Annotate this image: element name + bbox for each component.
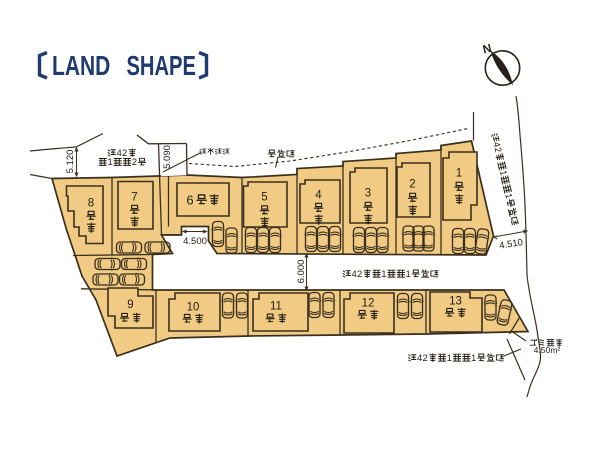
svg-text:4.50m²: 4.50m² bbox=[534, 345, 561, 355]
svg-text:10: 10 bbox=[187, 302, 200, 314]
svg-text:11: 11 bbox=[270, 301, 282, 313]
svg-text:1: 1 bbox=[471, 353, 476, 364]
svg-text:2: 2 bbox=[132, 157, 137, 168]
svg-text:12: 12 bbox=[362, 298, 375, 310]
svg-text:SHAPE: SHAPE bbox=[127, 51, 196, 82]
svg-text:5.120: 5.120 bbox=[65, 150, 76, 174]
svg-text:1: 1 bbox=[456, 168, 462, 180]
svg-text:5.090: 5.090 bbox=[162, 145, 173, 169]
svg-text:4: 4 bbox=[315, 190, 322, 202]
svg-text:1: 1 bbox=[447, 353, 452, 364]
svg-text:1: 1 bbox=[381, 269, 386, 280]
svg-text:6.000: 6.000 bbox=[296, 260, 307, 284]
svg-text:2: 2 bbox=[422, 353, 427, 364]
svg-text:13: 13 bbox=[449, 296, 462, 308]
svg-text:2: 2 bbox=[122, 148, 127, 159]
svg-text:5: 5 bbox=[261, 192, 267, 204]
svg-text:1: 1 bbox=[107, 157, 112, 168]
svg-text:LAND: LAND bbox=[52, 51, 110, 82]
svg-text:2: 2 bbox=[409, 179, 415, 191]
svg-text:7: 7 bbox=[131, 192, 137, 204]
svg-text:6: 6 bbox=[186, 193, 193, 208]
svg-text:4.500: 4.500 bbox=[183, 236, 207, 247]
svg-text:8: 8 bbox=[88, 198, 94, 210]
svg-text:2: 2 bbox=[357, 269, 362, 280]
svg-text:9: 9 bbox=[127, 299, 133, 311]
svg-text:3: 3 bbox=[365, 188, 371, 200]
svg-text:1: 1 bbox=[406, 269, 411, 280]
